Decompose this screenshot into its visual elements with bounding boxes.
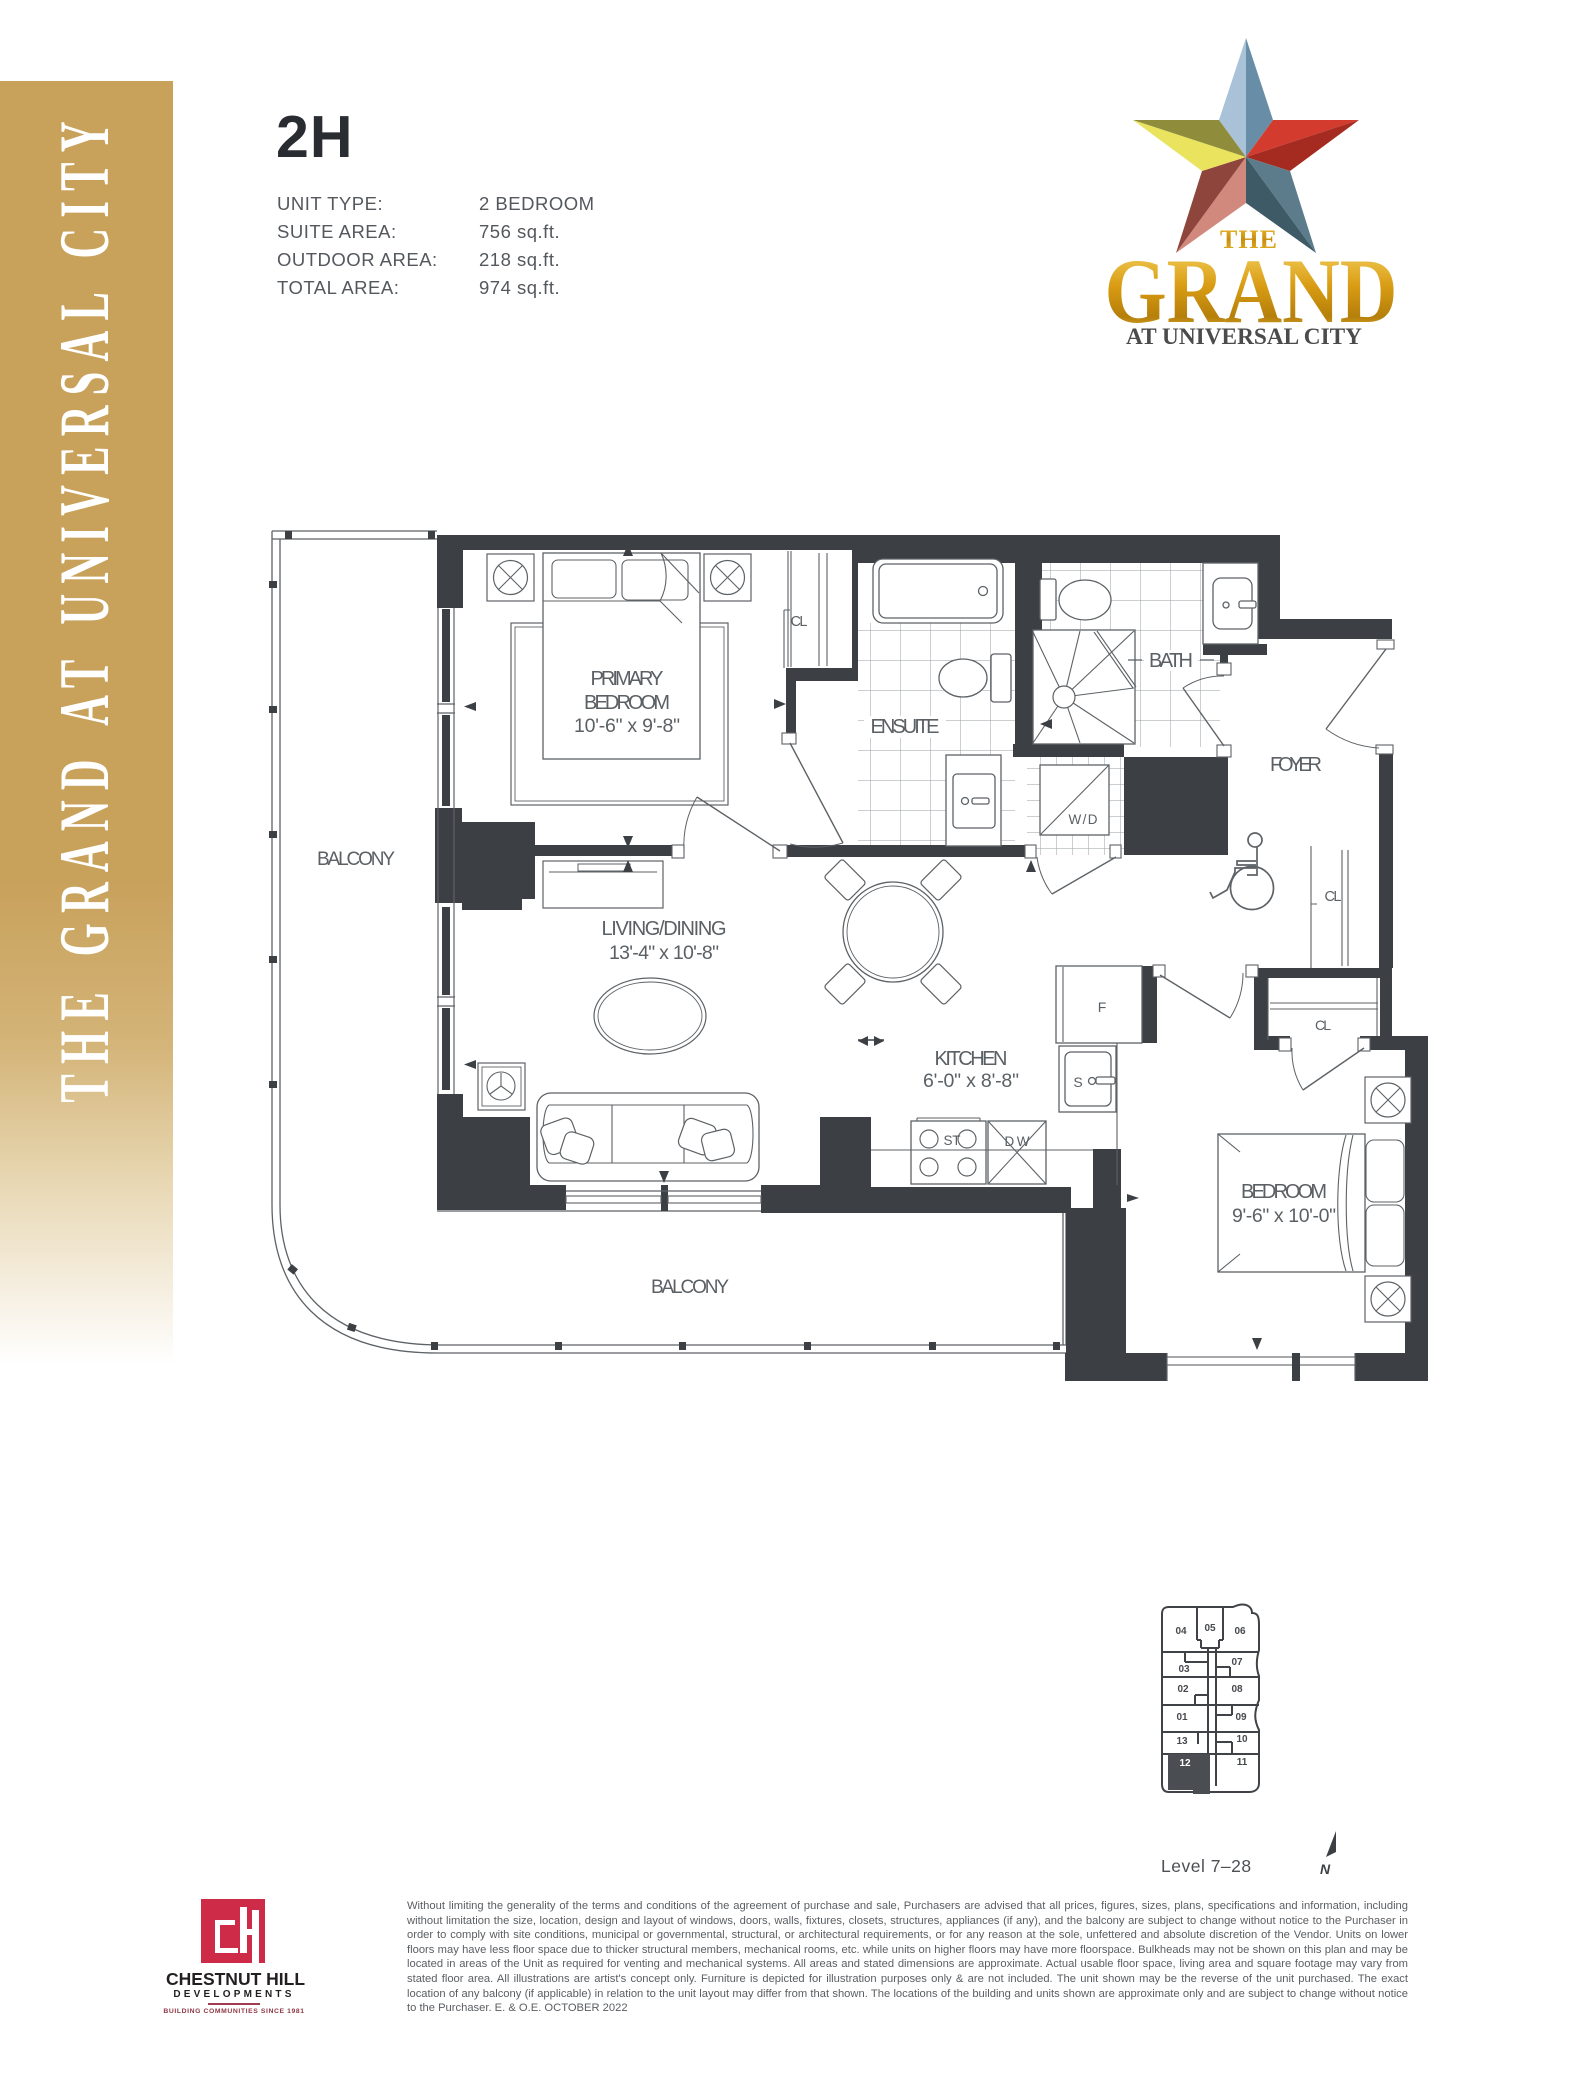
svg-text:03: 03 <box>1178 1664 1190 1675</box>
svg-text:CL: CL <box>1325 889 1342 905</box>
svg-text:02: 02 <box>1177 1684 1189 1695</box>
svg-text:CL: CL <box>1315 1017 1331 1033</box>
svg-text:13: 13 <box>1176 1736 1188 1747</box>
svg-text:06: 06 <box>1234 1626 1246 1637</box>
svg-text:LIVING/DINING: LIVING/DINING <box>602 918 727 940</box>
svg-text:9'-6" x 10'-0": 9'-6" x 10'-0" <box>1232 1205 1336 1227</box>
svg-text:F: F <box>1098 999 1107 1015</box>
svg-text:PRIMARY: PRIMARY <box>591 668 664 690</box>
svg-text:11: 11 <box>1237 1757 1248 1768</box>
svg-text:DW: DW <box>1005 1134 1030 1149</box>
svg-text:13'-4" x 10'-8": 13'-4" x 10'-8" <box>609 942 719 964</box>
svg-text:09: 09 <box>1235 1712 1247 1723</box>
svg-text:BALCONY: BALCONY <box>317 849 395 870</box>
svg-text:BATH: BATH <box>1149 650 1193 672</box>
svg-text:ST: ST <box>944 1133 961 1148</box>
svg-text:12: 12 <box>1179 1758 1191 1769</box>
svg-text:10'-6" x 9'-8": 10'-6" x 9'-8" <box>574 715 680 737</box>
svg-text:AT UNIVERSAL CITY: AT UNIVERSAL CITY <box>1126 324 1362 349</box>
svg-text:S: S <box>1073 1074 1082 1090</box>
svg-text:CL: CL <box>791 614 808 630</box>
svg-text:N: N <box>1320 1861 1331 1877</box>
svg-text:10: 10 <box>1236 1734 1248 1745</box>
svg-text:05: 05 <box>1204 1623 1216 1634</box>
svg-text:07: 07 <box>1231 1657 1243 1668</box>
svg-text:04: 04 <box>1175 1626 1187 1637</box>
svg-text:08: 08 <box>1231 1684 1243 1695</box>
svg-text:BEDROOM: BEDROOM <box>584 692 670 714</box>
svg-text:01: 01 <box>1176 1712 1188 1723</box>
svg-text:W/D: W/D <box>1069 812 1098 827</box>
svg-text:FOYER: FOYER <box>1270 754 1322 776</box>
svg-text:6'-0" x 8'-8": 6'-0" x 8'-8" <box>923 1070 1019 1092</box>
svg-text:BALCONY: BALCONY <box>651 1277 729 1298</box>
svg-text:ENSUITE: ENSUITE <box>871 716 940 738</box>
svg-text:KITCHEN: KITCHEN <box>935 1048 1008 1070</box>
svg-text:BEDROOM: BEDROOM <box>1241 1181 1327 1203</box>
